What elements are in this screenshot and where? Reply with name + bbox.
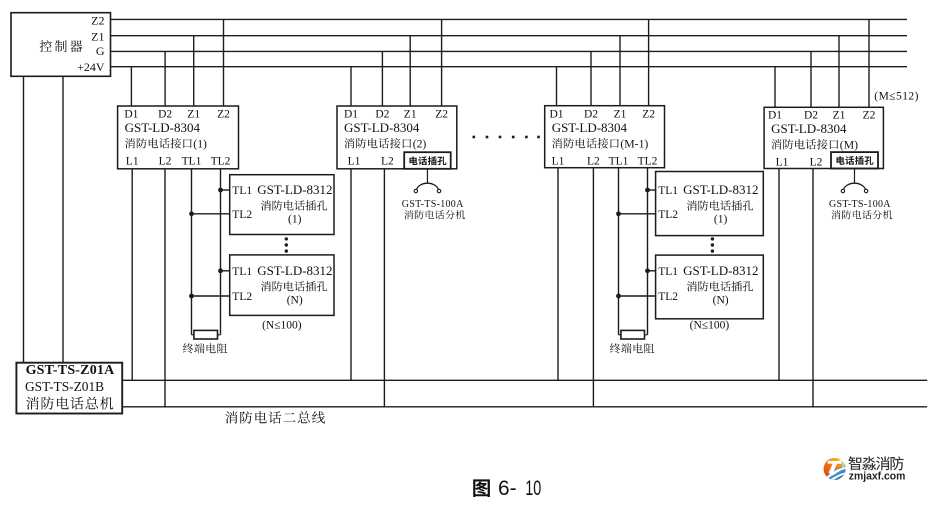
svg-text:TL2: TL2	[658, 291, 678, 303]
svg-text:Z2: Z2	[435, 108, 448, 120]
svg-text:Z2: Z2	[642, 108, 655, 120]
svg-text:GST-TS-Z01B: GST-TS-Z01B	[25, 379, 104, 394]
svg-text:D2: D2	[584, 108, 598, 120]
svg-text:TL1: TL1	[658, 266, 678, 278]
svg-text:zmjaxf.com: zmjaxf.com	[849, 470, 906, 482]
svg-text:G: G	[96, 44, 105, 58]
svg-text:D1: D1	[124, 108, 138, 120]
svg-text:Z1: Z1	[614, 108, 627, 120]
svg-text:+24V: +24V	[77, 60, 105, 74]
svg-text:TL1: TL1	[182, 155, 202, 167]
svg-text:(1): (1)	[714, 214, 728, 226]
svg-text:GST-LD-8304: GST-LD-8304	[552, 120, 628, 135]
svg-text:(1): (1)	[193, 138, 207, 151]
svg-text:L1: L1	[348, 155, 361, 167]
svg-text:Z1: Z1	[404, 108, 417, 120]
svg-text:Z2: Z2	[217, 108, 230, 120]
svg-text:GST-TS-Z01A: GST-TS-Z01A	[26, 363, 116, 378]
svg-text:Z1: Z1	[91, 30, 104, 44]
svg-text:Z2: Z2	[91, 14, 104, 28]
svg-text:GST-LD-8312: GST-LD-8312	[683, 263, 758, 278]
svg-text:(N≤100): (N≤100)	[262, 320, 302, 332]
svg-text:TL2: TL2	[211, 155, 231, 167]
svg-text:TL2: TL2	[638, 155, 658, 167]
svg-text:(M≤512): (M≤512)	[874, 90, 919, 102]
svg-text:Z1: Z1	[833, 109, 846, 121]
svg-text:GST-LD-8312: GST-LD-8312	[257, 263, 332, 278]
svg-text:TL1: TL1	[658, 185, 678, 197]
svg-text:TL1: TL1	[232, 266, 252, 278]
svg-text:GST-TS-100A: GST-TS-100A	[402, 199, 464, 210]
svg-text:D1: D1	[344, 108, 358, 120]
svg-text:(N): (N)	[287, 295, 303, 307]
svg-text:GST-TS-100A: GST-TS-100A	[829, 199, 891, 210]
svg-text:Z1: Z1	[187, 108, 200, 120]
svg-text:GST-LD-8304: GST-LD-8304	[344, 120, 420, 135]
svg-text:D1: D1	[768, 109, 782, 121]
svg-text:GST-LD-8312: GST-LD-8312	[683, 182, 758, 197]
svg-text:D2: D2	[804, 109, 818, 121]
svg-text:(N≤100): (N≤100)	[690, 320, 730, 332]
svg-text:(2): (2)	[413, 138, 427, 151]
svg-text:D2: D2	[375, 108, 389, 120]
svg-text:TL2: TL2	[658, 209, 678, 221]
svg-text:GST-LD-8304: GST-LD-8304	[125, 120, 201, 135]
svg-text:L2: L2	[587, 155, 600, 167]
svg-text:TL1: TL1	[609, 155, 629, 167]
svg-text:(M): (M)	[840, 139, 858, 152]
svg-text:10: 10	[525, 477, 541, 500]
svg-text:L1: L1	[126, 155, 139, 167]
svg-text:GST-LD-8304: GST-LD-8304	[771, 121, 847, 136]
svg-text:TL2: TL2	[232, 291, 252, 303]
svg-text:(M-1): (M-1)	[620, 138, 648, 151]
svg-text:L2: L2	[159, 155, 172, 167]
svg-text:D1: D1	[549, 108, 563, 120]
svg-text:TL1: TL1	[232, 185, 252, 197]
svg-text:(1): (1)	[288, 214, 302, 226]
svg-text:GST-LD-8312: GST-LD-8312	[257, 182, 332, 197]
svg-text:L1: L1	[552, 155, 565, 167]
svg-text:TL2: TL2	[232, 209, 252, 221]
svg-text:Z2: Z2	[863, 109, 876, 121]
svg-text:L2: L2	[810, 156, 823, 168]
svg-text:L1: L1	[776, 156, 789, 168]
svg-text:L2: L2	[381, 155, 394, 167]
svg-text:6-: 6-	[498, 477, 517, 500]
svg-text:D2: D2	[158, 108, 172, 120]
svg-text:(N): (N)	[713, 295, 729, 307]
